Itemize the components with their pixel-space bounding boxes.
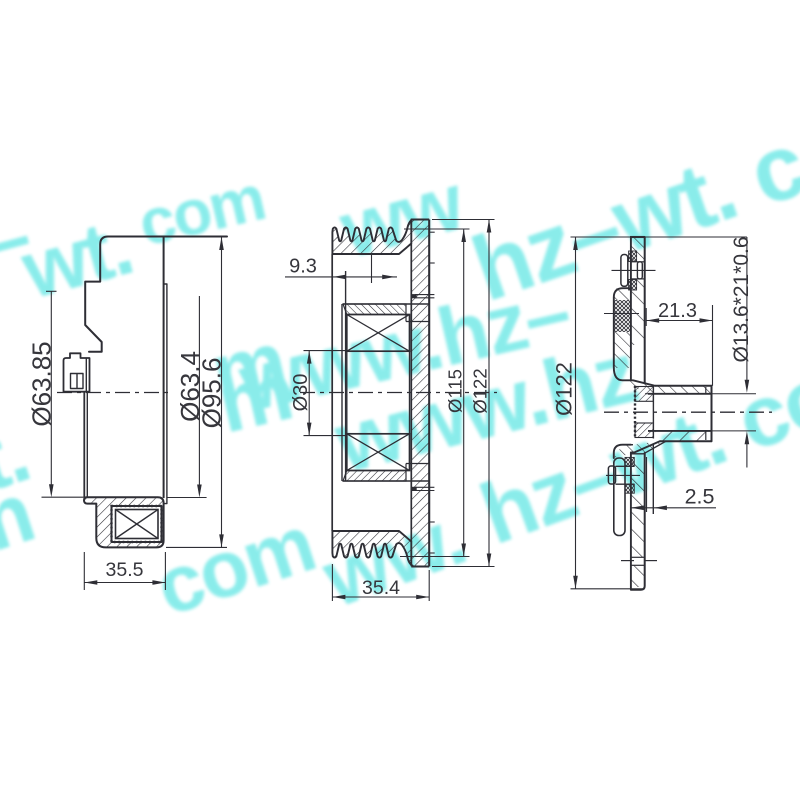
svg-text:21.3: 21.3 (658, 300, 697, 322)
svg-text:Ø95.6: Ø95.6 (197, 358, 227, 429)
svg-text:35.4: 35.4 (362, 577, 400, 599)
svg-text:Ø13.6*21*0.6: Ø13.6*21*0.6 (730, 236, 753, 362)
svg-text:Ø115: Ø115 (445, 369, 466, 413)
svg-text:35.5: 35.5 (106, 559, 144, 581)
svg-text:Ø63.85: Ø63.85 (27, 341, 57, 426)
svg-text:2.5: 2.5 (685, 485, 715, 509)
svg-text:Ø122: Ø122 (552, 362, 577, 416)
svg-text:9.3: 9.3 (289, 256, 317, 278)
svg-text:Ø30: Ø30 (290, 374, 312, 412)
svg-text:Ø122: Ø122 (470, 368, 491, 413)
